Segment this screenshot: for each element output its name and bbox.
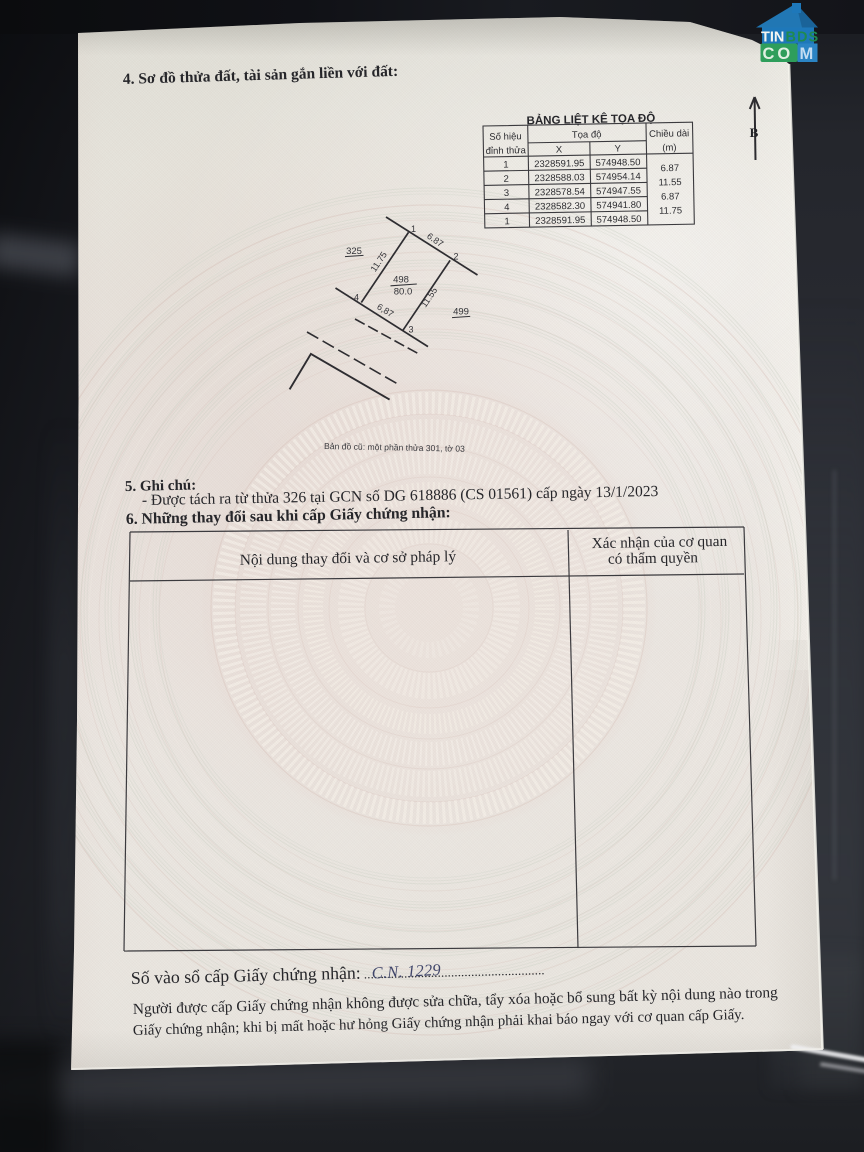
svg-text:80.0: 80.0	[394, 287, 413, 298]
svg-text:1: 1	[503, 160, 508, 171]
svg-text:4: 4	[504, 202, 509, 213]
svg-text:6.87: 6.87	[660, 163, 679, 174]
svg-text:6.87: 6.87	[425, 231, 445, 249]
svg-text:B: B	[750, 125, 759, 140]
svg-text:3: 3	[408, 325, 413, 335]
svg-text:4. Sơ đồ thửa đất, tài sản gắn: 4. Sơ đồ thửa đất, tài sản gắn liền với …	[123, 63, 399, 88]
svg-text:574948.50: 574948.50	[595, 157, 640, 169]
svg-text:Nội dung thay đổi và cơ sở phá: Nội dung thay đổi và cơ sở pháp lý	[240, 548, 457, 569]
svg-text:499: 499	[453, 307, 469, 318]
svg-text:2: 2	[453, 252, 458, 262]
svg-text:11.55: 11.55	[419, 285, 440, 309]
svg-text:6.87: 6.87	[661, 191, 680, 202]
svg-text:2328582.30: 2328582.30	[535, 201, 585, 213]
svg-text:574948.50: 574948.50	[596, 214, 641, 226]
svg-text:Tọa độ: Tọa độ	[572, 129, 602, 141]
svg-text:4: 4	[354, 293, 359, 303]
svg-text:574954.14: 574954.14	[596, 171, 641, 183]
svg-text:2328578.54: 2328578.54	[535, 187, 585, 199]
svg-text:1: 1	[411, 224, 416, 234]
svg-text:1: 1	[504, 216, 509, 227]
svg-text:TIN: TIN	[761, 30, 784, 46]
svg-text:Y: Y	[614, 143, 621, 154]
svg-text:(m): (m)	[662, 142, 676, 153]
svg-text:11.55: 11.55	[658, 177, 681, 188]
svg-text:BDS: BDS	[786, 30, 820, 46]
svg-text:Số hiệu: Số hiệu	[489, 131, 521, 143]
svg-text:Bản đồ cũ: một phần thửa 301,: Bản đồ cũ: một phần thửa 301, tờ 03	[324, 441, 465, 454]
svg-text:11.75: 11.75	[368, 250, 389, 274]
svg-text:2328591.95: 2328591.95	[534, 158, 584, 170]
svg-text:11.75: 11.75	[659, 205, 682, 216]
svg-text:6,87: 6,87	[375, 302, 395, 320]
svg-text:C.N. 1229: C.N. 1229	[371, 960, 441, 983]
svg-text:574941.80: 574941.80	[596, 200, 641, 212]
svg-text:đỉnh thửa: đỉnh thửa	[486, 145, 527, 157]
svg-text:Chiều dài: Chiều dài	[649, 128, 689, 140]
svg-text:574947.55: 574947.55	[596, 186, 641, 198]
svg-text:M: M	[800, 45, 814, 63]
svg-text:2328588.03: 2328588.03	[534, 172, 584, 184]
svg-text:3: 3	[504, 188, 509, 199]
svg-text:X: X	[556, 145, 563, 156]
svg-text:có thẩm quyền: có thẩm quyền	[608, 549, 699, 568]
svg-text:2328591.95: 2328591.95	[535, 215, 585, 227]
svg-text:2: 2	[504, 174, 509, 185]
svg-text:Số vào sổ cấp Giấy chứng nhận:: Số vào sổ cấp Giấy chứng nhận:	[131, 963, 361, 988]
svg-text:498: 498	[393, 275, 409, 286]
svg-text:CO: CO	[763, 45, 794, 63]
